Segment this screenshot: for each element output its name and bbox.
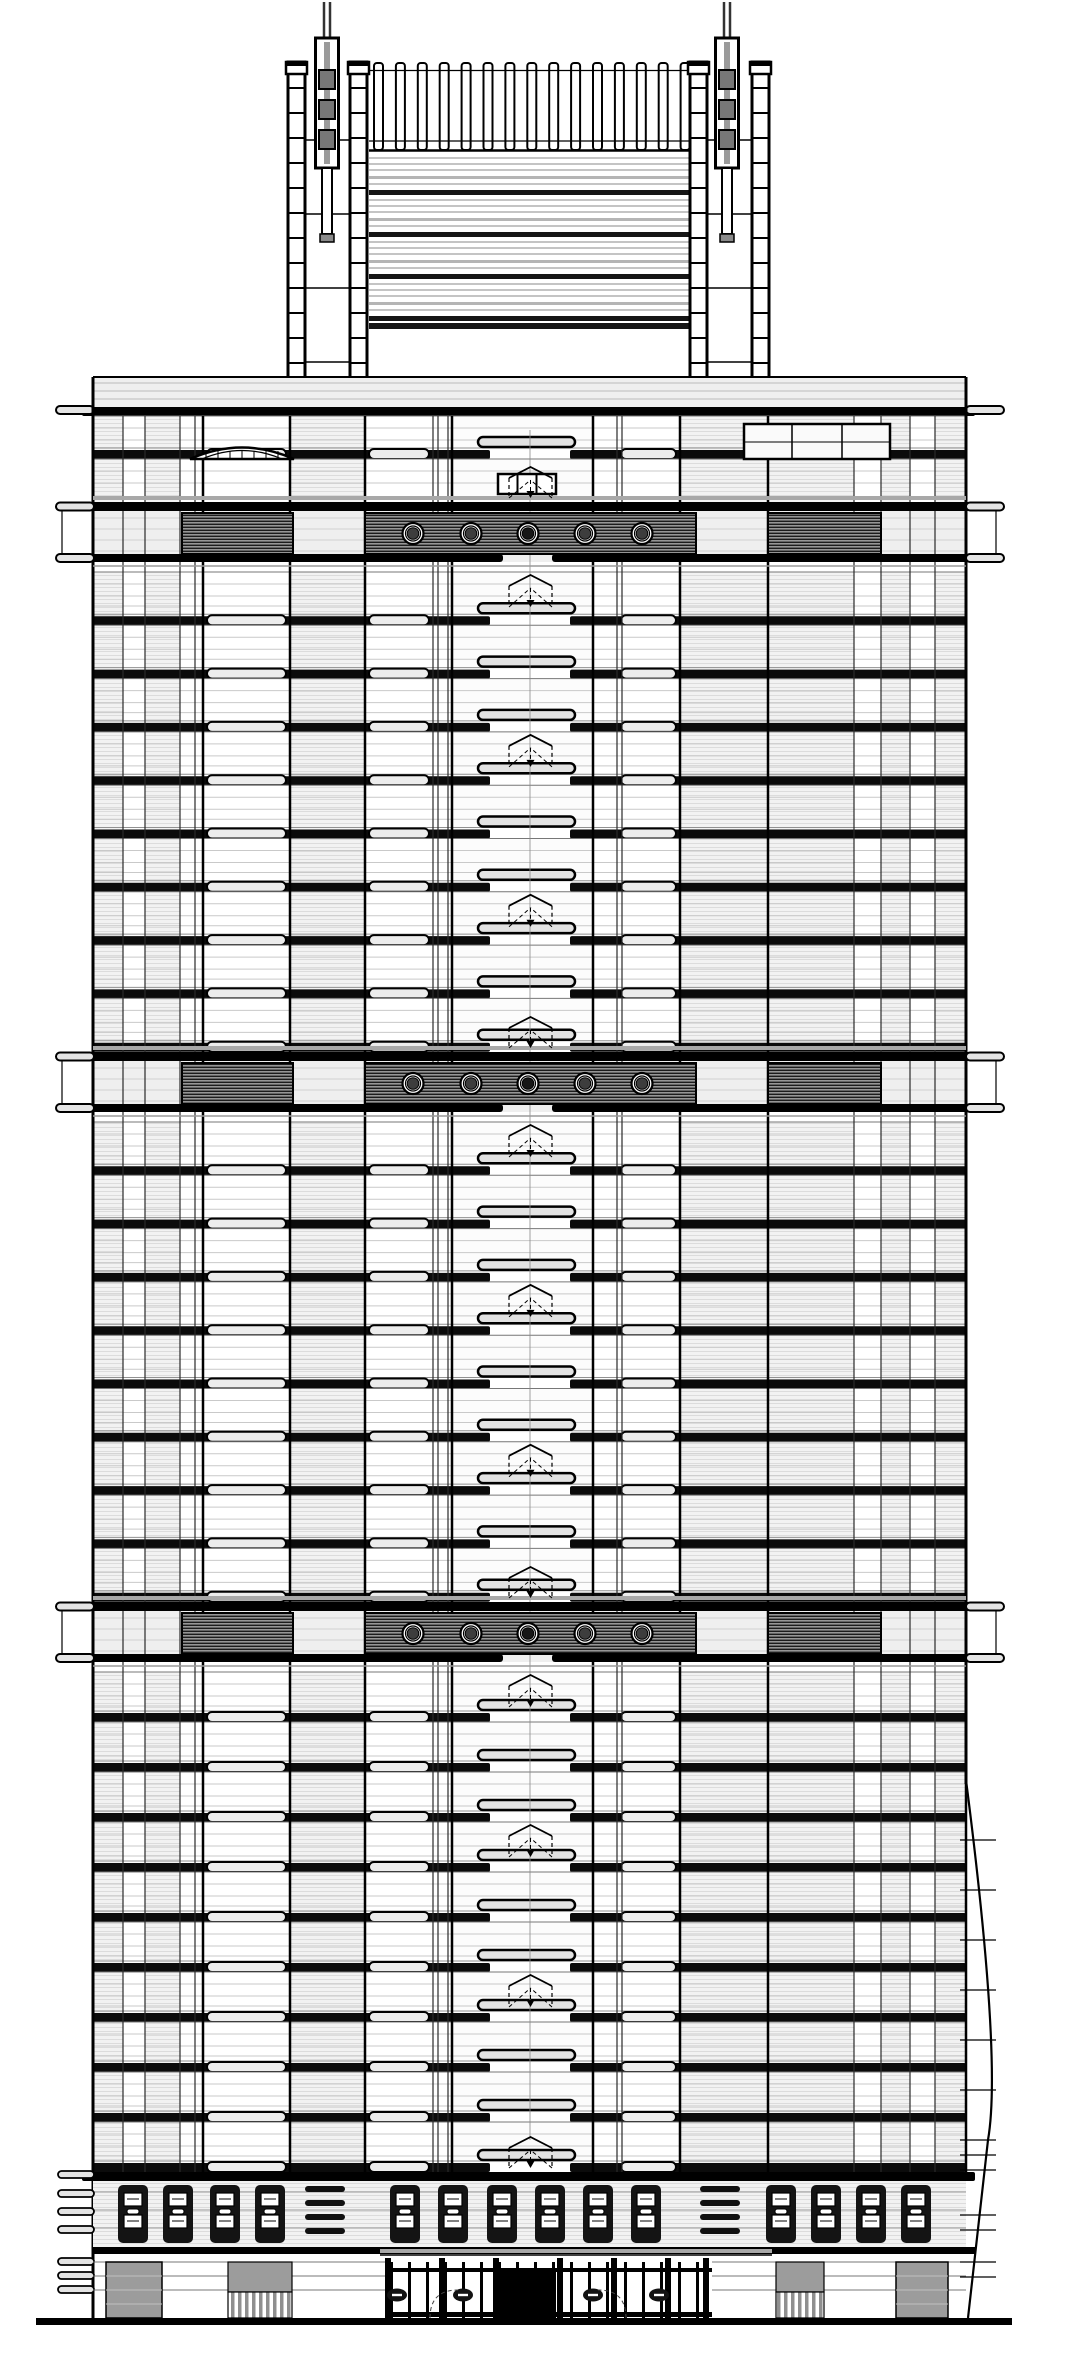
storefront-gray-panel [228, 2262, 292, 2318]
porthole [518, 523, 539, 544]
band-hatch-left [182, 513, 293, 554]
base-window-panel [811, 2185, 841, 2243]
attic-right-box [744, 424, 890, 459]
base-window-panel [118, 2185, 148, 2243]
band-hatch-right [768, 1063, 881, 1104]
vent-pill [700, 2200, 740, 2206]
band-hatch-left [182, 1063, 293, 1104]
base-window-panel [535, 2185, 565, 2243]
elevation-drawing [0, 0, 1080, 2354]
base-window-panel [901, 2185, 931, 2243]
porthole [575, 1623, 596, 1644]
entrance-sign-oval [649, 2289, 669, 2302]
ground-line [36, 2318, 1012, 2325]
porthole [632, 523, 653, 544]
base-window-panel [766, 2185, 796, 2243]
base-window-panel [255, 2185, 285, 2243]
porthole [461, 1623, 482, 1644]
base-window-panel [438, 2185, 468, 2243]
revolving-door-opening [500, 2272, 556, 2318]
band-hatch-left [182, 1613, 293, 1654]
storefront-gray-panel [896, 2262, 948, 2318]
base-window-panel [856, 2185, 886, 2243]
porthole [403, 523, 424, 544]
base-window-panel [210, 2185, 240, 2243]
vent-pill [305, 2186, 345, 2192]
base-window-panel [583, 2185, 613, 2243]
vent-pill [305, 2228, 345, 2234]
porthole [461, 523, 482, 544]
porthole [632, 1623, 653, 1644]
base-window-panel [487, 2185, 517, 2243]
storefront-gray-panel [106, 2262, 162, 2318]
base-window-panel [390, 2185, 420, 2243]
elevation-canvas [0, 0, 1080, 2354]
porthole [461, 1073, 482, 1094]
porthole [518, 1623, 539, 1644]
porthole [403, 1623, 424, 1644]
tower-facade [93, 416, 966, 2172]
band-hatch-right [768, 1613, 881, 1654]
porthole [575, 523, 596, 544]
shoulder-slab [56, 377, 1004, 421]
vent-pill [305, 2200, 345, 2206]
entrance-sign-oval [387, 2289, 407, 2302]
crown-louver-block [369, 152, 696, 330]
band-hatch-right [768, 513, 881, 554]
vent-pill [700, 2214, 740, 2220]
storefront-gray-panel [776, 2262, 824, 2318]
porthole [518, 1073, 539, 1094]
vent-pill [305, 2214, 345, 2220]
vent-pill [700, 2186, 740, 2192]
porthole [632, 1073, 653, 1094]
porthole [575, 1073, 596, 1094]
vent-pill [700, 2228, 740, 2234]
porthole [403, 1073, 424, 1094]
base-window-panel [163, 2185, 193, 2243]
base-window-panel [631, 2185, 661, 2243]
